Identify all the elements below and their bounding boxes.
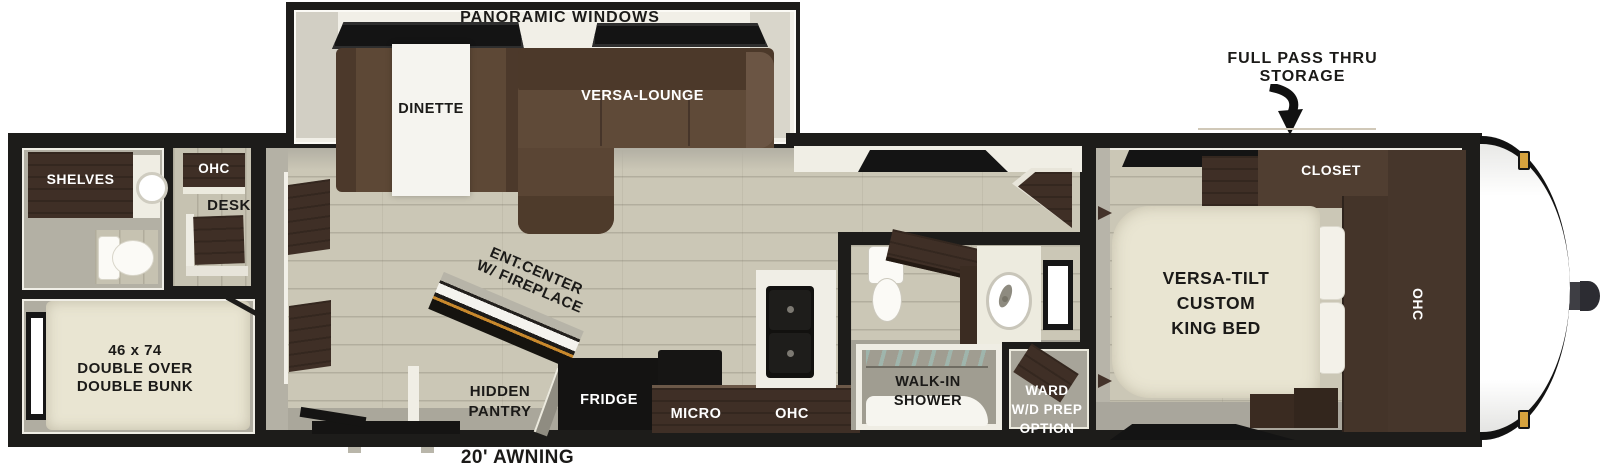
microwave [658, 350, 722, 388]
awning-label: 20' AWNING [430, 447, 605, 469]
dinette-bench-left-back [336, 48, 358, 192]
desk-ledge [186, 266, 248, 276]
desk-ohc-shelf-edge [183, 187, 245, 194]
rv-floorplan: SHELVES OHC DESK 46 x 74 DOUBLE OVER DOU… [0, 0, 1600, 476]
closet-label: CLOSET [1276, 162, 1386, 178]
dinette-label: DINETTE [378, 101, 484, 118]
entry-step [312, 421, 460, 434]
micro-label: MICRO [664, 406, 728, 423]
fridge-label: FRIDGE [558, 392, 660, 409]
sink-drain-bottom [787, 350, 794, 357]
bunk-label-line1: 46 x 74 [60, 342, 210, 359]
wall-chair-lower [289, 300, 331, 372]
shelves-label: SHELVES [28, 171, 133, 187]
hidden-pantry-label-line1: HIDDEN [440, 383, 560, 400]
wall-chair-upper [288, 179, 330, 255]
kitchen-ohc-label: OHC [760, 406, 824, 423]
kitchen-window [858, 150, 1008, 172]
panoramic-windows-label: PANORAMIC WINDOWS [440, 9, 680, 27]
slideout-side-left [296, 12, 338, 138]
bunk-label-line2: DOUBLE OVER [60, 360, 210, 377]
versa-lounge-chaise-front [518, 196, 614, 234]
king-bed-label-line2: CUSTOM [1125, 293, 1307, 313]
front-cap [1480, 136, 1570, 440]
awning-arm-left [348, 447, 361, 453]
bunk-label-line3: DOUBLE BUNK [60, 378, 210, 395]
ward-label-line2: W/D PREP [1004, 402, 1090, 418]
bunk-window-glass [31, 318, 43, 414]
pillow-top [1316, 226, 1345, 300]
marker-light-top [1518, 151, 1530, 170]
full-pass-thru-label-line1: FULL PASS THRU [1195, 50, 1410, 68]
desk-surface [193, 215, 245, 265]
hitch-coupler [1580, 281, 1600, 311]
versa-lounge-arm [746, 52, 774, 148]
versa-lounge-label: VERSA-LOUNGE [560, 88, 725, 105]
versa-lounge-back [518, 48, 774, 92]
bedroom-ohc-tall-cabinet [1388, 150, 1466, 432]
shower-glass-panels [866, 350, 988, 366]
king-bed-label-line1: VERSA-TILT [1125, 268, 1307, 288]
sink-drain-top [787, 306, 794, 313]
shower-glass-line [866, 366, 988, 368]
shower-label-line2: SHOWER [868, 393, 988, 410]
rear-ohc-label: OHC [183, 161, 245, 177]
dinette-table [392, 44, 470, 196]
bed-foot-cabinet-step [1294, 388, 1338, 428]
dinette-bench-right-seat [468, 48, 506, 192]
dinette-bench-left-seat [356, 48, 394, 192]
hidden-pantry-label-line2: PANTRY [440, 403, 560, 420]
headboard-cabinet [1342, 196, 1392, 432]
wall-bath-top [838, 232, 1082, 245]
shower-label-line1: WALK-IN [868, 374, 988, 391]
vanity-drain [1002, 296, 1008, 302]
ward-label-line3: OPTION [1004, 421, 1090, 437]
bath-toilet-bowl [872, 278, 902, 322]
desk-label: DESK [198, 197, 260, 214]
storage-lid-line [1198, 128, 1376, 130]
ward-label-line1: WARD [1004, 383, 1090, 399]
rear-sink [136, 172, 168, 204]
vanity-side [960, 266, 977, 344]
bath-window-glass [1048, 266, 1068, 324]
rear-toilet-bowl [112, 240, 154, 276]
bedroom-ohc-label: OHC [1404, 272, 1426, 336]
marker-light-bottom [1518, 410, 1530, 429]
pillow-bottom [1316, 302, 1345, 374]
king-bed-label-line3: KING BED [1125, 318, 1307, 338]
bedroom-overhead-cabinet [1202, 156, 1260, 208]
